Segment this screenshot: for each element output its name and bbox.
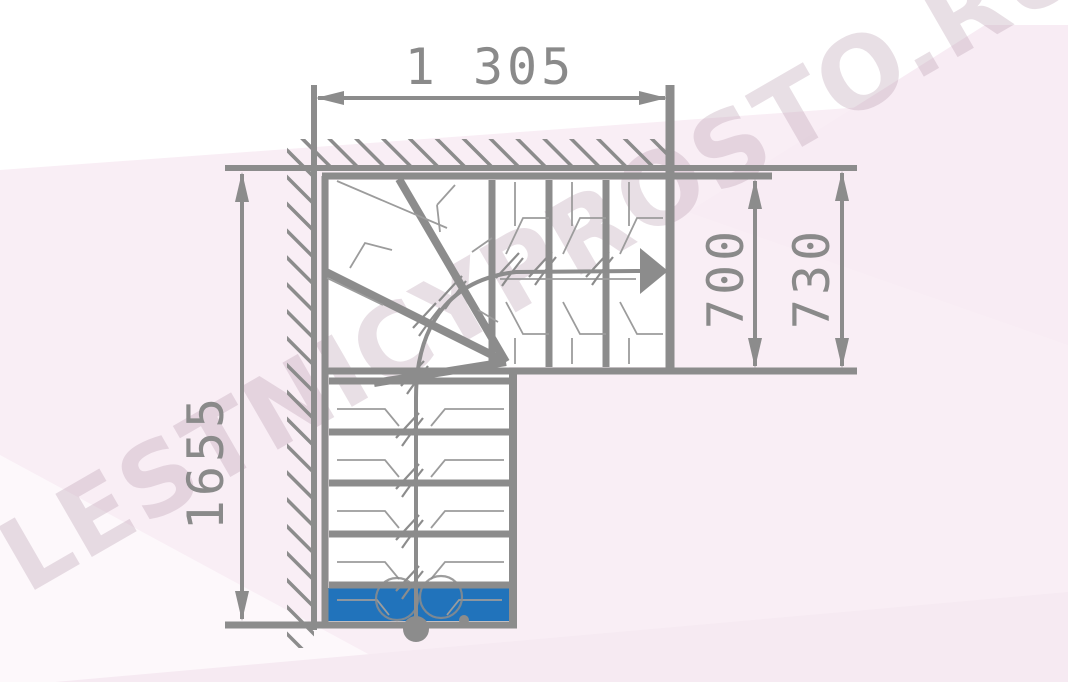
dimension-label-right-overall: 730 bbox=[787, 178, 837, 378]
wall-hatching bbox=[287, 139, 672, 648]
dimension-label-left-height: 1655 bbox=[181, 312, 231, 612]
staircase-plan-page: { "page": { "type": "staircase-plan-draw… bbox=[0, 0, 1068, 682]
wall-lines bbox=[225, 85, 857, 630]
dimension-label-top-width: 1 305 bbox=[325, 42, 655, 92]
lower-flight-treads bbox=[329, 381, 510, 585]
walk-line-ticks bbox=[396, 252, 613, 599]
staircase-plan-drawing bbox=[0, 0, 1068, 682]
dimension-label-right-flight: 700 bbox=[701, 178, 751, 378]
walk-line-arrow-icon bbox=[640, 248, 668, 294]
walk-line-start-dot bbox=[403, 616, 429, 642]
